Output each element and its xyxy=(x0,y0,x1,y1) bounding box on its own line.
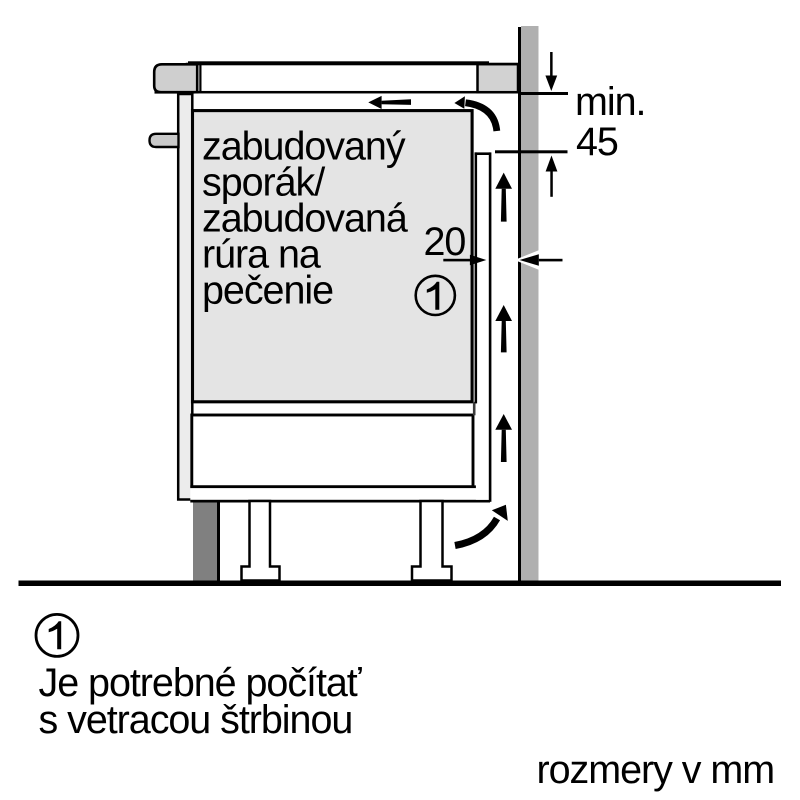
svg-text:s vetracou štrbinou: s vetracou štrbinou xyxy=(39,698,353,742)
svg-text:rozmery v mm: rozmery v mm xyxy=(537,748,775,792)
svg-text:45: 45 xyxy=(576,120,618,164)
svg-text:20: 20 xyxy=(424,220,466,264)
svg-text:min.: min. xyxy=(575,80,645,124)
svg-text:pečenie: pečenie xyxy=(202,269,333,313)
